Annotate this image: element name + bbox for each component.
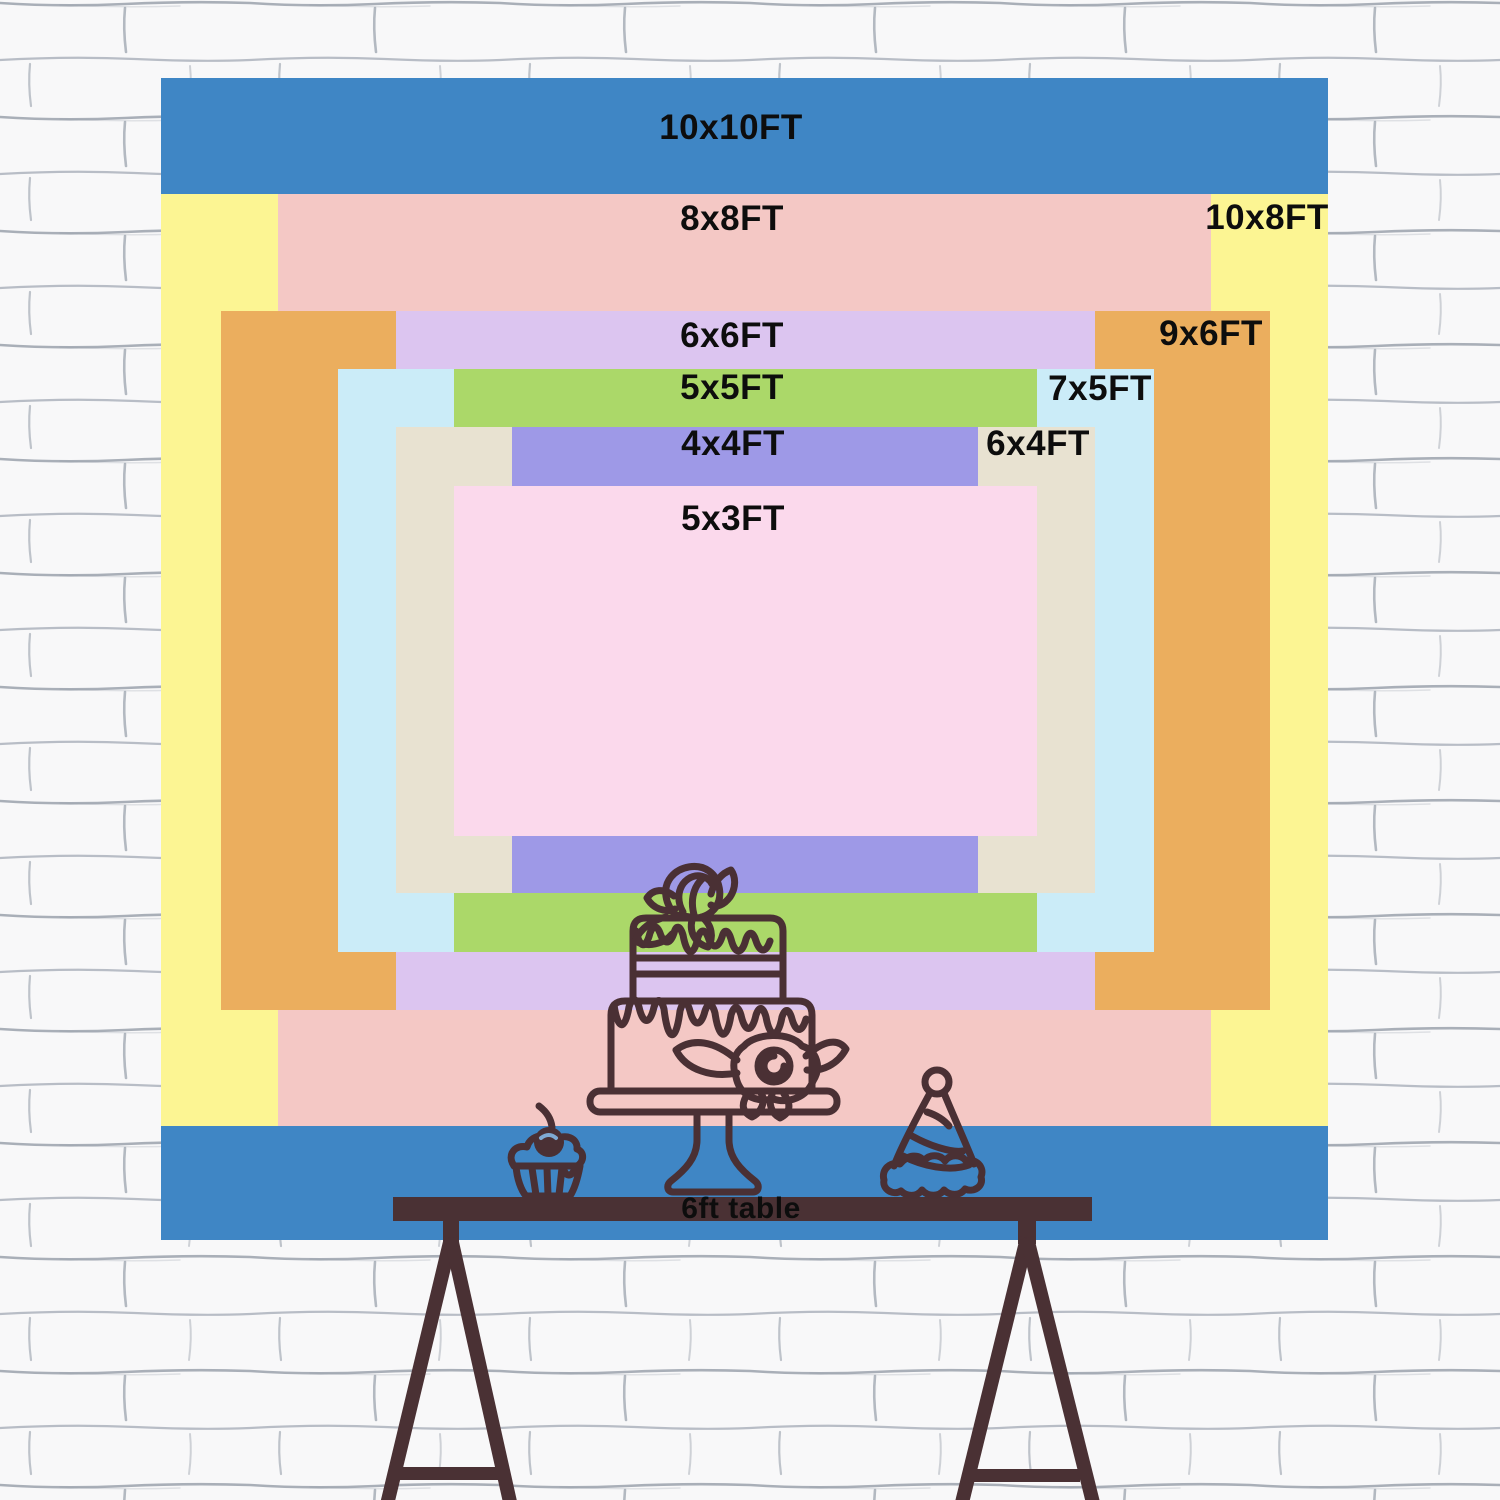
size-label-5x3ft: 5x3FT <box>681 499 785 539</box>
size-label-9x6ft: 9x6FT <box>1159 314 1263 354</box>
size-label-4x4ft: 4x4FT <box>681 424 785 464</box>
table-size-label: 6ft table <box>681 1192 801 1226</box>
size-label-8x8ft: 8x8FT <box>680 199 784 239</box>
size-label-7x5ft: 7x5FT <box>1048 369 1152 409</box>
table-left-trestle-crossbar <box>397 1467 505 1480</box>
size-label-6x6ft: 6x6FT <box>680 316 784 356</box>
size-label-6x4ft: 6x4FT <box>986 424 1090 464</box>
size-label-5x5ft: 5x5FT <box>680 368 784 408</box>
size-label-10x8ft: 10x8FT <box>1205 198 1329 238</box>
size-label-10x10ft: 10x10FT <box>659 108 803 148</box>
backdrop-size-chart: 10x10FT 10x8FT 8x8FT 9x6FT 6x6FT 7x5FT 5… <box>0 0 1500 1500</box>
table-right-trestle-crossbar <box>972 1469 1080 1482</box>
